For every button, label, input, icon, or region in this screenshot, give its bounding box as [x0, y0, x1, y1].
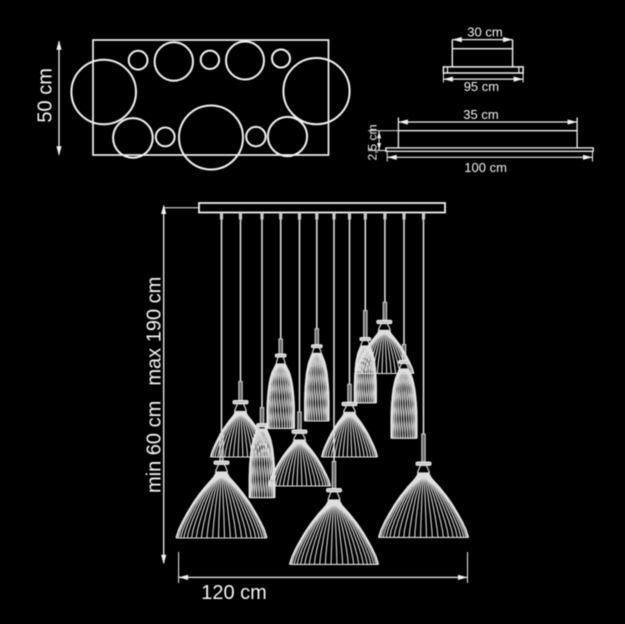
svg-text:100 cm: 100 cm	[464, 160, 507, 175]
svg-text:30 cm: 30 cm	[467, 25, 502, 40]
svg-text:50 cm: 50 cm	[35, 68, 57, 122]
svg-text:min 60 cm: min 60 cm	[144, 401, 166, 493]
svg-text:120 cm: 120 cm	[201, 582, 267, 604]
svg-text:2,5 cm: 2,5 cm	[366, 124, 380, 160]
svg-text:95 cm: 95 cm	[464, 79, 499, 94]
svg-text:35 cm: 35 cm	[463, 107, 498, 122]
svg-text:max 190 cm: max 190 cm	[144, 277, 166, 386]
